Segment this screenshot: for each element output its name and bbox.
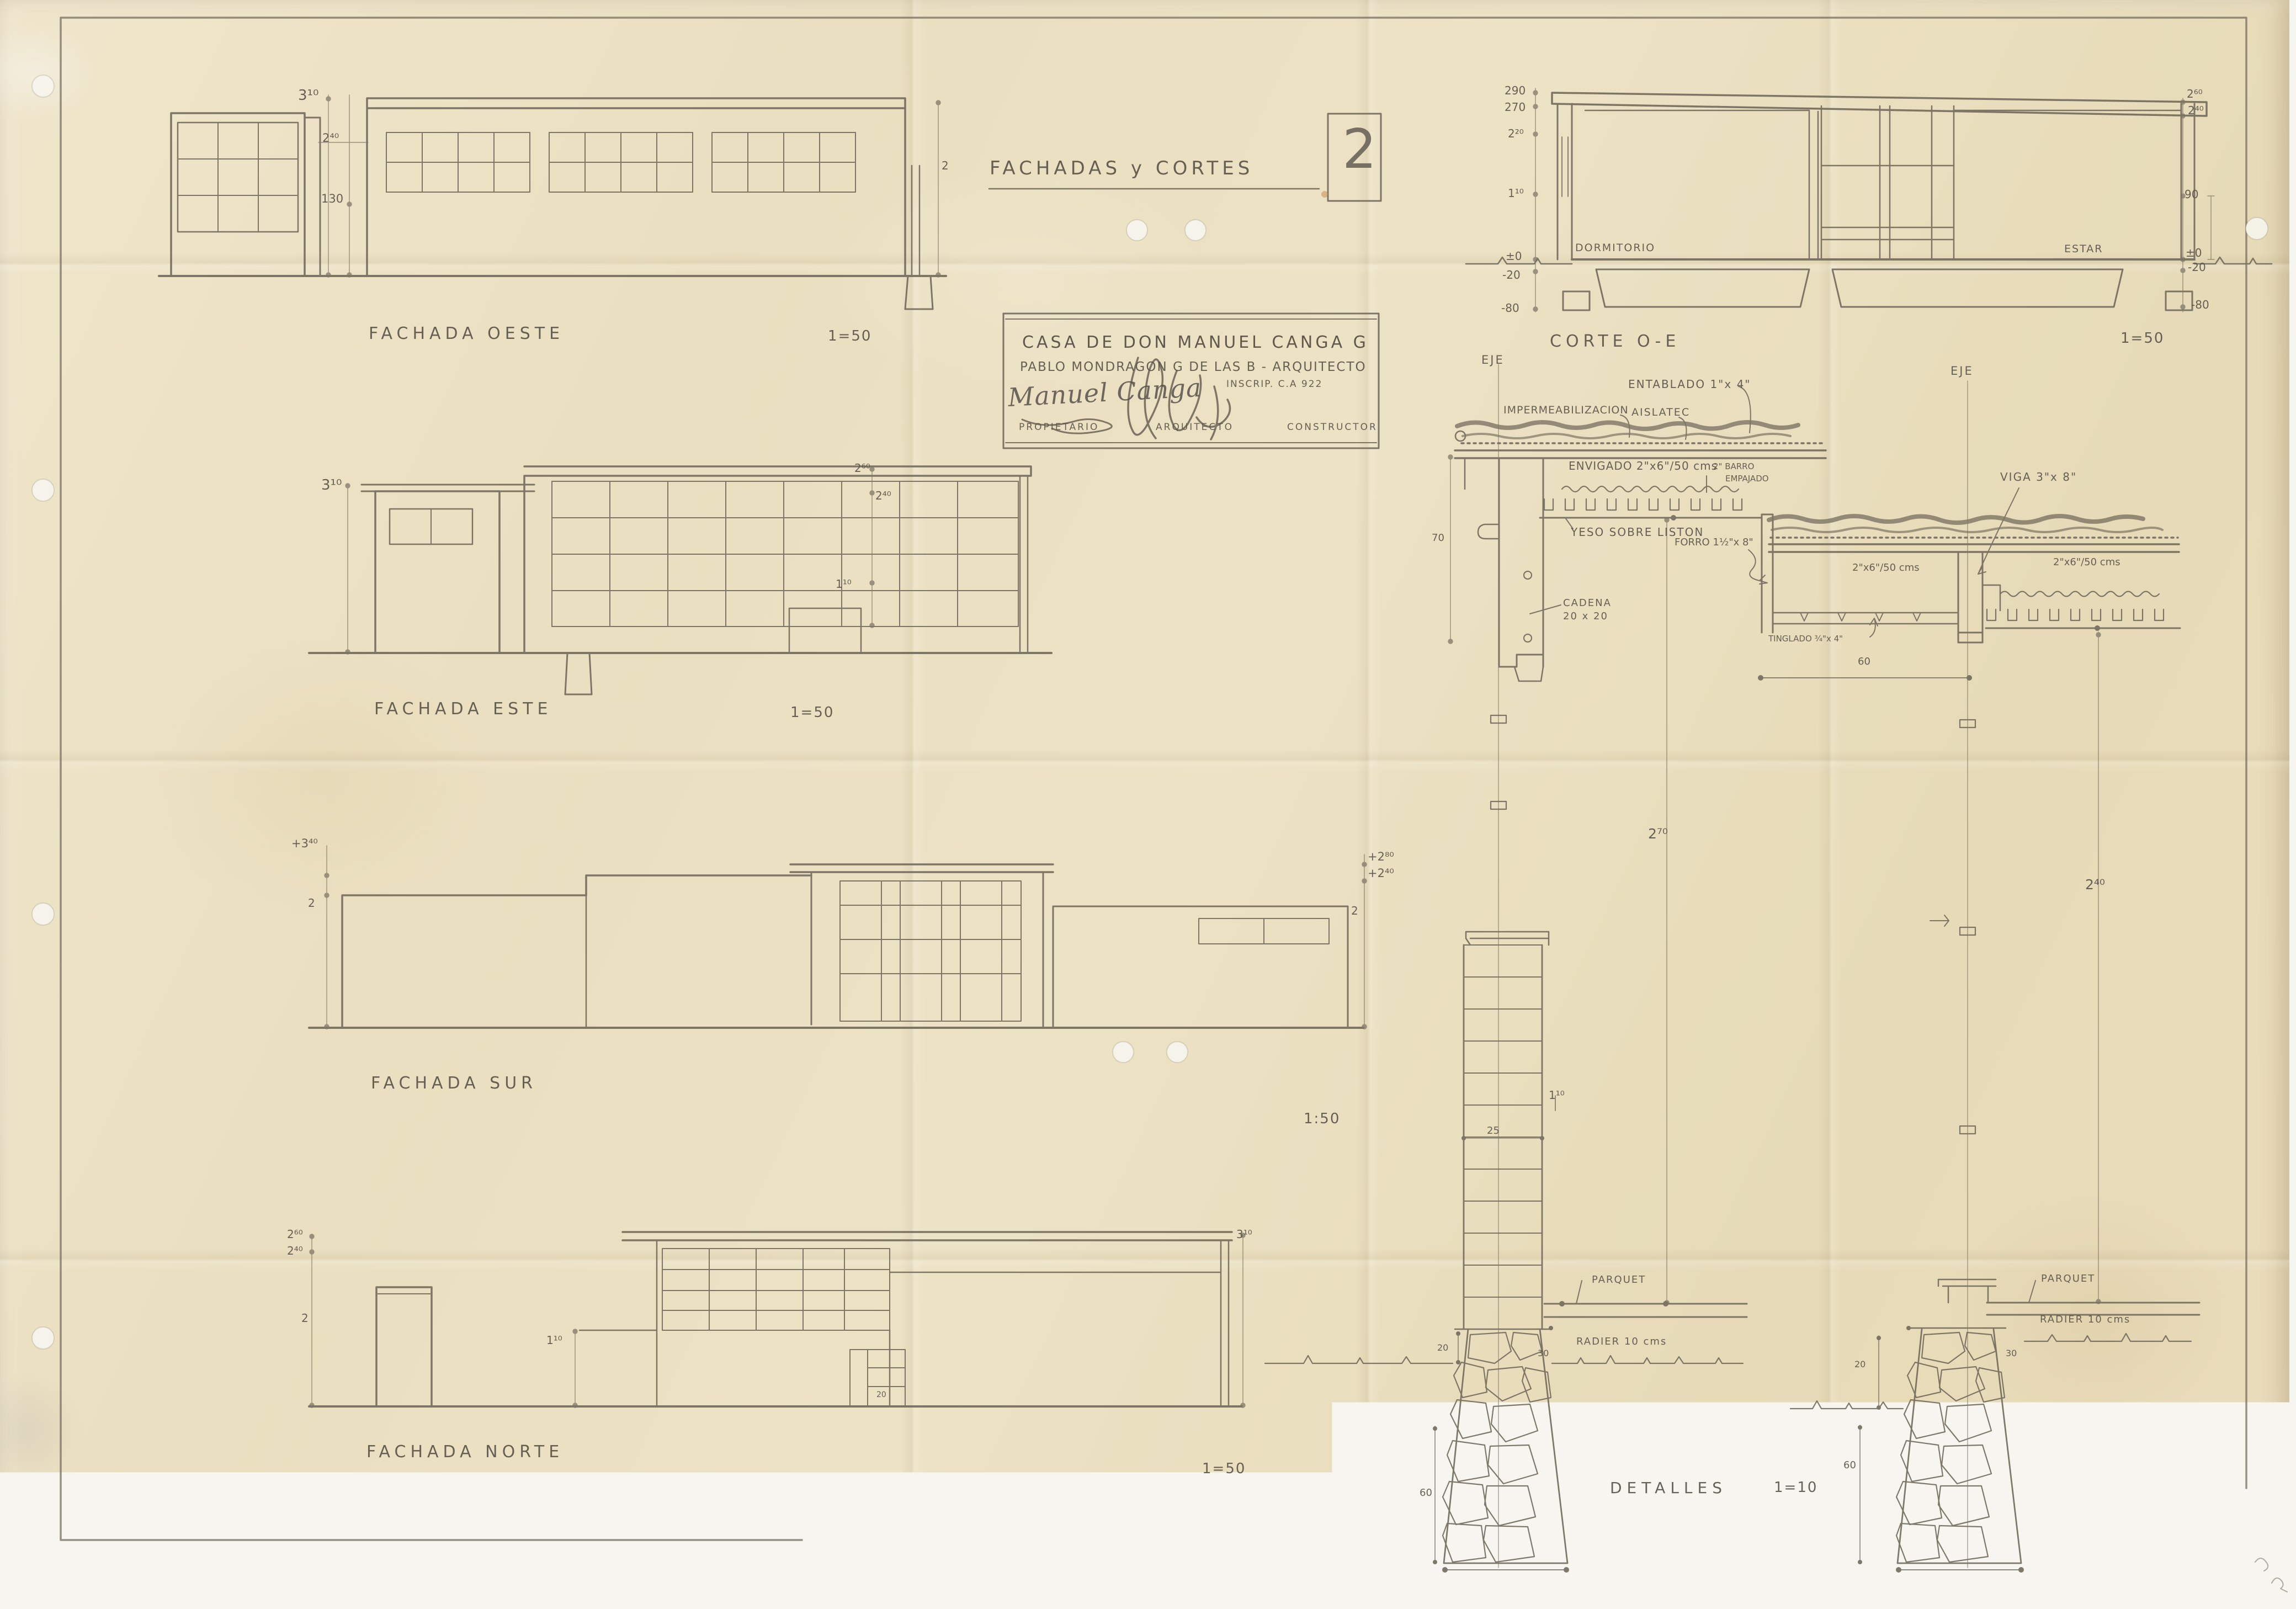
- fachada-sur-drawing: [309, 846, 1367, 1029]
- dim: 2⁶⁰: [854, 463, 870, 474]
- note: ENTABLADO 1"x 4": [1628, 379, 1751, 390]
- dim: 2⁴⁰: [2085, 878, 2105, 891]
- level: -80: [1501, 302, 1519, 314]
- note: 2" BARRO: [1713, 463, 1754, 471]
- dim: 2: [301, 1313, 309, 1324]
- corte-label: CORTE O-E: [1550, 333, 1680, 350]
- level: 90: [2185, 189, 2198, 200]
- dim: +2⁴⁰: [1368, 868, 1394, 879]
- dim: 2: [1351, 905, 1358, 916]
- dim: 20: [1854, 1360, 1866, 1369]
- fachada-oeste-scale: 1=50: [828, 329, 871, 343]
- drawing-sheet: FACHADAS y CORTES 2 CASA DE DON MANUEL C…: [0, 0, 2296, 1609]
- dim: 1¹⁰: [546, 1335, 562, 1346]
- corner-scribble: [2255, 1558, 2287, 1592]
- level: -80: [2191, 299, 2209, 310]
- axis-label: EJE: [1481, 354, 1505, 366]
- dim: 30: [1538, 1349, 1549, 1358]
- corte-oe-drawing: [1466, 88, 2272, 312]
- dim: 2⁴⁰: [322, 132, 339, 144]
- detail-2-drawing: [1748, 381, 2199, 1573]
- axis-label: EJE: [1950, 365, 1974, 377]
- level: 270: [1505, 102, 1526, 113]
- level: ±0: [1506, 251, 1522, 262]
- level: -20: [2188, 262, 2206, 273]
- note: 2"x6"/50 cms: [1852, 563, 1920, 573]
- level: 1¹⁰: [1508, 188, 1524, 199]
- note: VIGA 3"x 8": [2000, 471, 2077, 482]
- dim: 70: [1432, 533, 1444, 543]
- dim: 20: [876, 1391, 886, 1399]
- project-title: CASA DE DON MANUEL CANGA G: [1022, 334, 1369, 351]
- dim: 3¹⁰: [321, 478, 342, 492]
- dim: 60: [1858, 657, 1870, 667]
- dim: +2⁸⁰: [1368, 851, 1394, 863]
- corte-scale: 1=50: [2120, 331, 2164, 346]
- fachada-norte-label: FACHADA NORTE: [366, 1444, 564, 1461]
- dim: 3¹⁰: [1236, 1229, 1252, 1240]
- fachada-norte-drawing: [309, 1232, 1245, 1408]
- rust-spot: [1321, 191, 1328, 198]
- fachada-este-scale: 1=50: [790, 705, 834, 720]
- dim: 30: [2006, 1349, 2017, 1358]
- role-architect: ARQUITECTO: [1156, 423, 1234, 432]
- fachada-oeste-label: FACHADA OESTE: [369, 326, 564, 342]
- level: 290: [1505, 85, 1526, 96]
- dim: 3¹⁰: [298, 88, 318, 103]
- dim: 1¹⁰: [1549, 1090, 1565, 1101]
- note: PARQUET: [1592, 1275, 1646, 1285]
- fachada-norte-scale: 1=50: [1202, 1462, 1246, 1476]
- dim: 40: [1958, 1574, 1973, 1586]
- role-builder: CONSTRUCTOR: [1287, 423, 1378, 432]
- level: ±0: [2186, 247, 2202, 258]
- fachada-sur-label: FACHADA SUR: [371, 1075, 537, 1092]
- detalles-scale: 1=10: [1774, 1480, 1817, 1495]
- architect-line: PABLO MONDRAGON G DE LAS B - ARQUITECTO: [1020, 361, 1367, 374]
- dim: 60: [1843, 1461, 1856, 1470]
- note: RADIER 10 cms: [2040, 1315, 2130, 1325]
- note: RADIER 10 cms: [1576, 1337, 1667, 1347]
- role-owner: PROPIETARIO: [1019, 423, 1099, 432]
- dim: 2: [942, 160, 949, 171]
- fachada-oeste-drawing: [159, 95, 946, 309]
- dim: 2⁴⁰: [287, 1245, 303, 1256]
- note: FORRO 1½"x 8": [1675, 538, 1753, 548]
- level: 2²⁰: [1508, 128, 1524, 139]
- note: YESO SOBRE LISTON: [1571, 527, 1704, 538]
- dim: +3⁴⁰: [291, 838, 318, 849]
- dim: 2: [308, 898, 315, 909]
- sheet-title: FACHADAS y CORTES: [990, 159, 1253, 178]
- detalles-label: DETALLES: [1610, 1480, 1727, 1496]
- dim: 130: [321, 193, 343, 205]
- dim: 25: [1487, 1126, 1500, 1136]
- room-label: DORMITORIO: [1575, 243, 1655, 253]
- note: TINGLADO ¾"x 4": [1768, 635, 1843, 643]
- dim: 1¹⁰: [836, 578, 852, 590]
- dim: 40: [1487, 1574, 1502, 1586]
- level: 2⁴⁰: [2188, 105, 2204, 116]
- border-frame: [61, 18, 2246, 1540]
- level: 2⁶⁰: [2187, 88, 2203, 99]
- dim: 2⁶⁰: [287, 1229, 303, 1240]
- dim: 2⁴⁰: [875, 490, 891, 501]
- note: PARQUET: [2041, 1274, 2095, 1284]
- dim: 60: [1420, 1488, 1432, 1498]
- inscription: INSCRIP. C.A 922: [1226, 380, 1322, 389]
- fachada-sur-scale: 1:50: [1304, 1112, 1340, 1126]
- note: IMPERMEABILIZACION: [1503, 405, 1629, 416]
- level: -20: [1502, 269, 1521, 280]
- note: AISLATEC: [1631, 407, 1690, 418]
- room-label: ESTAR: [2064, 244, 2103, 254]
- note: 2"x6"/50 cms: [2053, 557, 2120, 567]
- note: ENVIGADO 2"x6"/50 cms: [1569, 460, 1718, 471]
- note: EMPAJADO: [1725, 475, 1769, 483]
- axis-label: EJE: [1947, 1589, 1970, 1600]
- note: CADENA: [1563, 598, 1612, 608]
- linework-layer: [0, 0, 2296, 1609]
- axis-label: EJE: [1477, 1589, 1500, 1600]
- sheet-number: 2: [1342, 123, 1376, 177]
- fachada-este-drawing: [309, 466, 1051, 694]
- note: 20 x 20: [1563, 612, 1608, 622]
- dim: 20: [1437, 1344, 1448, 1352]
- dim: 2⁷⁰: [1648, 827, 1668, 841]
- fachada-este-label: FACHADA ESTE: [374, 701, 552, 718]
